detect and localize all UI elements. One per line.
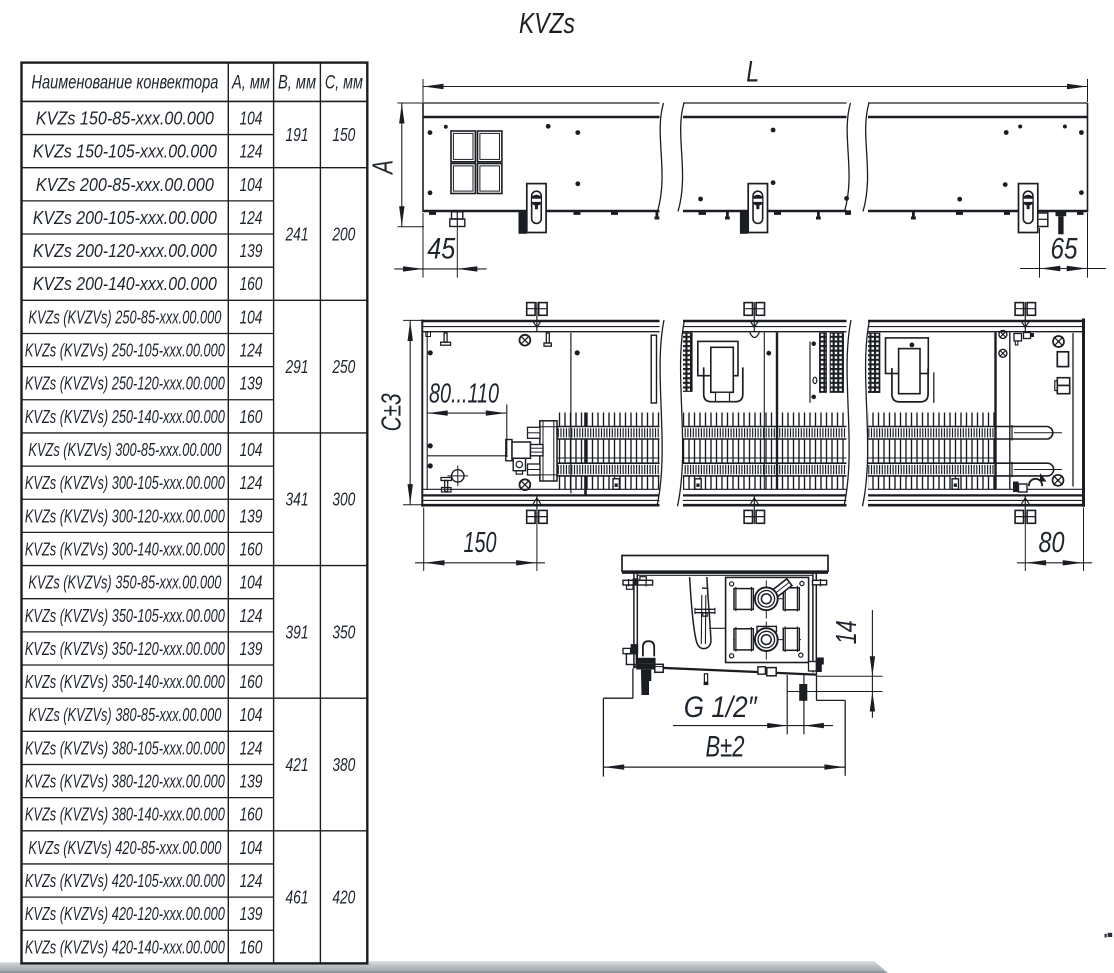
svg-text:300: 300 [332,489,356,510]
svg-text:KVZs (KVZVs) 380-85-xxx.00.000: KVZs (KVZVs) 380-85-xxx.00.000 [28,704,221,725]
svg-text:461: 461 [286,887,309,908]
svg-text:160: 160 [239,538,263,559]
svg-text:KVZs (KVZVs) 350-85-xxx.00.000: KVZs (KVZVs) 350-85-xxx.00.000 [28,572,221,593]
svg-text:124: 124 [239,141,262,162]
svg-text:C±3: C±3 [376,393,407,431]
svg-text:150: 150 [332,124,356,145]
svg-text:124: 124 [239,472,262,493]
svg-text:14: 14 [831,620,863,644]
svg-text:139: 139 [239,373,262,394]
svg-text:L: L [746,56,759,89]
svg-text:139: 139 [239,903,262,924]
svg-text:KVZs 200-140-xxx.00.000: KVZs 200-140-xxx.00.000 [33,273,218,294]
svg-text:KVZs (KVZVs) 300-85-xxx.00.000: KVZs (KVZVs) 300-85-xxx.00.000 [28,439,221,460]
svg-text:124: 124 [239,605,262,626]
svg-text:380: 380 [332,754,356,775]
svg-text:104: 104 [239,107,262,128]
svg-text:C, мм: C, мм [325,72,363,94]
svg-text:KVZs 200-105-xxx.00.000: KVZs 200-105-xxx.00.000 [33,207,218,228]
svg-text:KVZs (KVZVs) 250-105-xxx.00.00: KVZs (KVZVs) 250-105-xxx.00.000 [25,340,225,361]
svg-text:KVZs (KVZVs) 250-140-xxx.00.00: KVZs (KVZVs) 250-140-xxx.00.000 [25,406,225,427]
svg-text:Наименование конвектора: Наименование конвектора [31,72,218,94]
svg-text:B±2: B±2 [706,731,745,764]
svg-text:80: 80 [1039,527,1065,559]
svg-text:104: 104 [239,439,262,460]
svg-text:KVZs (KVZVs) 380-105-xxx.00.00: KVZs (KVZVs) 380-105-xxx.00.000 [25,737,225,758]
svg-text:B, мм: B, мм [278,72,316,94]
svg-text:KVZs (KVZVs) 350-120-xxx.00.00: KVZs (KVZVs) 350-120-xxx.00.000 [25,638,225,659]
svg-text:KVZs (KVZVs) 420-105-xxx.00.00: KVZs (KVZVs) 420-105-xxx.00.000 [25,870,225,891]
svg-text:45: 45 [427,233,455,266]
svg-text:KVZs (KVZVs) 380-140-xxx.00.00: KVZs (KVZVs) 380-140-xxx.00.000 [25,804,225,825]
svg-text:191: 191 [286,124,309,145]
svg-text:291: 291 [285,356,309,377]
svg-text:KVZs: KVZs [519,8,575,40]
svg-text:KVZs 200-120-xxx.00.000: KVZs 200-120-xxx.00.000 [33,240,218,261]
svg-text:124: 124 [239,737,262,758]
svg-text:65: 65 [1051,233,1078,266]
svg-text:104: 104 [239,306,262,327]
svg-text:124: 124 [239,207,262,228]
svg-text:G 1/2″: G 1/2″ [684,691,758,724]
svg-text:KVZs (KVZVs) 300-120-xxx.00.00: KVZs (KVZVs) 300-120-xxx.00.000 [25,505,225,526]
svg-text:KVZs (KVZVs) 250-120-xxx.00.00: KVZs (KVZVs) 250-120-xxx.00.000 [25,373,225,394]
svg-text:124: 124 [239,340,262,361]
svg-text:139: 139 [239,638,262,659]
svg-text:241: 241 [285,224,309,245]
svg-text:160: 160 [239,406,263,427]
svg-text:A: A [368,160,400,175]
svg-text:KVZs (KVZVs) 380-120-xxx.00.00: KVZs (KVZVs) 380-120-xxx.00.000 [25,771,225,792]
svg-text:A, мм: A, мм [231,72,270,94]
svg-text:421: 421 [286,754,309,775]
svg-text:139: 139 [239,505,262,526]
svg-text:80...110: 80...110 [429,378,499,409]
svg-text:104: 104 [239,837,262,858]
svg-text:104: 104 [239,704,262,725]
svg-text:KVZs (KVZVs) 420-85-xxx.00.000: KVZs (KVZVs) 420-85-xxx.00.000 [28,837,221,858]
svg-text:KVZs (KVZVs) 350-105-xxx.00.00: KVZs (KVZVs) 350-105-xxx.00.000 [25,605,225,626]
svg-text:KVZs (KVZVs) 250-85-xxx.00.000: KVZs (KVZVs) 250-85-xxx.00.000 [28,306,221,327]
svg-text:139: 139 [239,240,262,261]
svg-text:104: 104 [239,572,262,593]
svg-text:160: 160 [239,804,263,825]
svg-text:350: 350 [332,621,356,642]
svg-text:150: 150 [464,527,497,559]
svg-text:KVZs (KVZVs) 300-105-xxx.00.00: KVZs (KVZVs) 300-105-xxx.00.000 [25,472,225,493]
svg-text:KVZs (KVZVs) 420-120-xxx.00.00: KVZs (KVZVs) 420-120-xxx.00.000 [25,903,225,924]
svg-text:250: 250 [332,356,356,377]
svg-text:139: 139 [239,771,262,792]
svg-text:160: 160 [239,273,263,294]
svg-text:KVZs (KVZVs) 350-140-xxx.00.00: KVZs (KVZVs) 350-140-xxx.00.000 [25,671,225,692]
svg-text:391: 391 [286,621,309,642]
svg-text:KVZs 150-85-xxx.00.000: KVZs 150-85-xxx.00.000 [36,107,215,128]
svg-text:200: 200 [332,224,356,245]
svg-text:160: 160 [239,671,263,692]
svg-text:KVZs (KVZVs) 300-140-xxx.00.00: KVZs (KVZVs) 300-140-xxx.00.000 [25,538,225,559]
svg-text:124: 124 [239,870,262,891]
svg-text:KVZs 150-105-xxx.00.000: KVZs 150-105-xxx.00.000 [33,141,218,162]
svg-text:KVZs (KVZVs) 420-140-xxx.00.00: KVZs (KVZVs) 420-140-xxx.00.000 [25,936,225,957]
svg-text:160: 160 [239,936,263,957]
svg-text:KVZs 200-85-xxx.00.000: KVZs 200-85-xxx.00.000 [36,174,215,195]
svg-text:420: 420 [332,887,356,908]
svg-text:104: 104 [239,174,262,195]
svg-text:341: 341 [286,489,309,510]
